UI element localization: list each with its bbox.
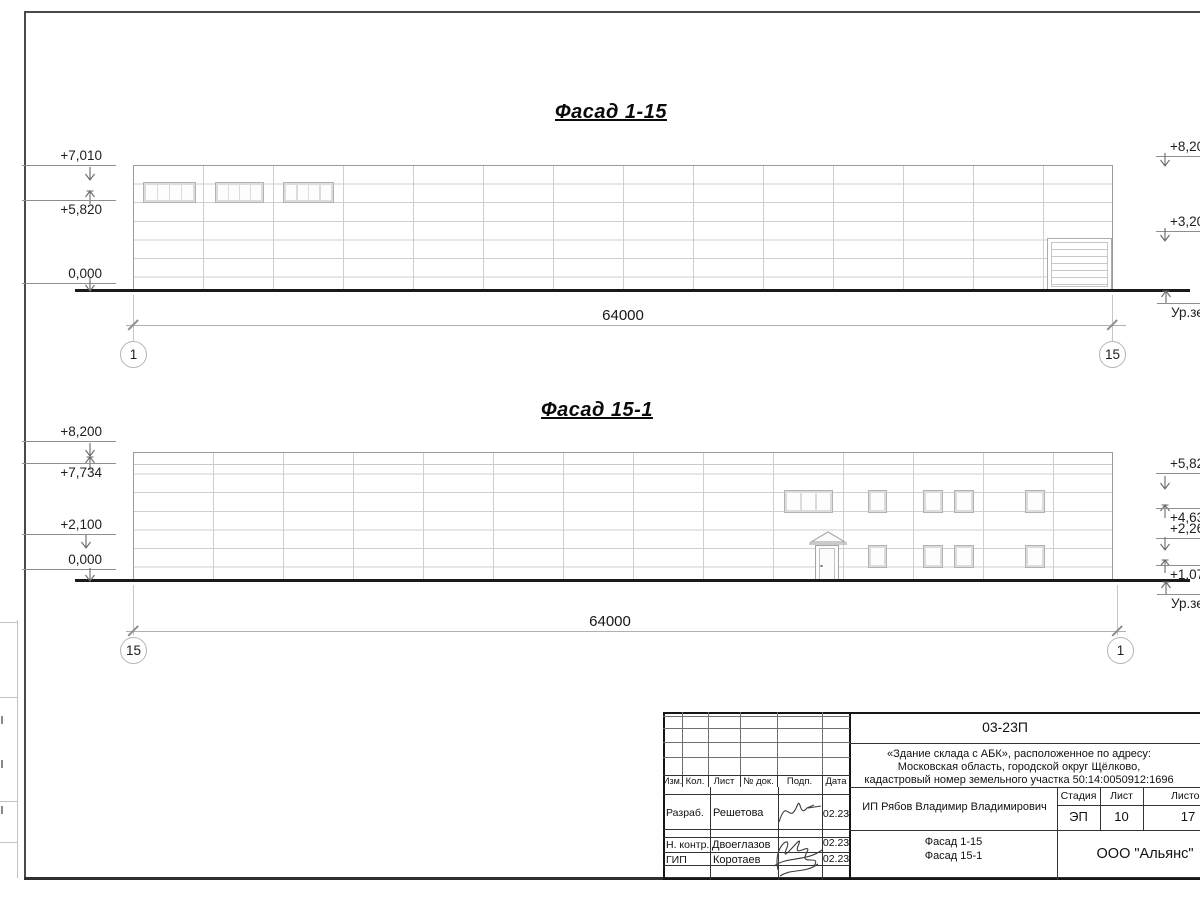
ribbon-window	[283, 182, 334, 203]
col-header-doc: № док.	[740, 776, 777, 787]
elevation-arrow-up-icon	[1160, 290, 1172, 304]
elevation-arrow-down-icon	[84, 278, 96, 292]
pediment-icon	[809, 530, 847, 545]
axis-bubble-1: 1	[120, 341, 147, 368]
ground-line	[75, 289, 1190, 292]
signature-date: 02.23	[822, 808, 850, 820]
elevation-arrow-down-icon	[84, 443, 96, 457]
frame-top-border	[24, 11, 1200, 13]
elevation-arrow-down-icon	[1159, 476, 1171, 490]
axis-bubble-15: 15	[120, 637, 147, 664]
ribbon-window	[215, 182, 264, 203]
axis-bubble-1: 1	[1107, 637, 1134, 664]
frame-left-border	[24, 11, 26, 880]
col-header-list: Лист	[708, 776, 740, 787]
ground-level-label: Ур.земли	[1157, 594, 1200, 612]
client-name: ИП Рябов Владимир Владимирович	[852, 801, 1057, 813]
elevation-arrow-down-icon	[84, 568, 96, 582]
sheet-value: 10	[1100, 809, 1143, 824]
window	[954, 490, 974, 513]
signer-role: Разраб.	[666, 807, 704, 819]
window	[954, 545, 974, 568]
margin-mark	[1, 806, 3, 814]
facade-1-15-building	[133, 165, 1113, 291]
margin-mark	[1, 760, 3, 768]
project-description: «Здание склада с АБК», расположенное по …	[852, 748, 1186, 787]
title-block: 03-23П «Здание склада с АБК», расположен…	[663, 712, 1200, 880]
ground-level-label: Ур.земли	[1157, 303, 1200, 321]
signer-role: ГИП	[666, 854, 687, 866]
window	[868, 545, 887, 568]
sheet-title: Фасад 1-15 Фасад 15-1	[850, 835, 1057, 863]
col-header-podp: Подп.	[777, 776, 822, 787]
stage-value: ЭП	[1057, 809, 1100, 824]
signature-date: 02.23	[822, 853, 850, 865]
margin-mark	[1, 716, 3, 724]
parapet-line	[134, 464, 1112, 465]
axis-bubble-15: 15	[1099, 341, 1126, 368]
signature-scribble	[773, 792, 825, 830]
elevation-mark: 0,000	[22, 266, 116, 284]
signer-name: Решетова	[713, 807, 763, 819]
drawing-sheet: { "colors": { "panel_line": "#cfcfcf", "…	[0, 0, 1200, 900]
signer-name: Двоеглазов	[712, 839, 770, 851]
col-header-izm: Изм.	[663, 776, 682, 786]
window	[868, 490, 887, 513]
elevation-mark: +7,010	[22, 148, 116, 166]
elevation-arrow-down-icon	[84, 167, 96, 181]
doc-code: 03-23П	[850, 719, 1160, 735]
extension-line	[133, 295, 134, 341]
elevation-arrow-down-icon	[80, 535, 92, 549]
signer-role: Н. контр.	[666, 839, 709, 851]
window	[784, 490, 833, 513]
window	[923, 545, 943, 568]
sheets-label: Листов	[1143, 790, 1200, 802]
elevation-mark: +2,100	[22, 517, 116, 535]
ground-line	[75, 579, 1190, 582]
window	[1025, 490, 1045, 513]
stage-label: Стадия	[1057, 790, 1100, 802]
facade-1-15-title: Фасад 1-15	[511, 101, 711, 124]
elevation-mark: +7,734	[22, 463, 116, 481]
dimension-label: 64000	[563, 307, 683, 324]
elevation-arrow-up-icon	[1160, 581, 1172, 595]
signature-scribble	[770, 826, 826, 878]
panel-grid	[134, 166, 1112, 290]
sectional-gate	[1047, 238, 1112, 291]
col-header-data: Дата	[822, 776, 850, 787]
col-header-kol: Кол.	[682, 776, 708, 787]
facade-15-1-title: Фасад 15-1	[497, 399, 697, 422]
ribbon-window	[143, 182, 196, 203]
sheet-label: Лист	[1100, 790, 1143, 802]
elevation-mark: +8,200	[22, 424, 116, 442]
facade-15-1-building	[133, 452, 1113, 580]
extension-line	[1112, 295, 1113, 341]
elevation-arrow-down-icon	[1159, 537, 1171, 551]
window	[923, 490, 943, 513]
signer-name: Коротаев	[713, 854, 761, 866]
dimension-line	[126, 631, 1126, 632]
signature-date: 02.23	[822, 837, 850, 849]
window	[1025, 545, 1045, 568]
elevation-arrow-down-icon	[1159, 228, 1171, 242]
sheets-value: 17	[1143, 809, 1200, 824]
dimension-line	[126, 325, 1126, 326]
entrance-door	[815, 545, 839, 581]
elevation-arrow-down-icon	[1159, 153, 1171, 167]
dimension-label: 64000	[550, 613, 670, 630]
company-name: ООО "Альянс"	[1057, 846, 1200, 862]
elevation-mark: +5,820	[22, 200, 116, 218]
elevation-mark: +5,820	[1156, 456, 1200, 474]
elevation-mark: 0,000	[22, 552, 116, 570]
door-handle	[820, 565, 823, 568]
